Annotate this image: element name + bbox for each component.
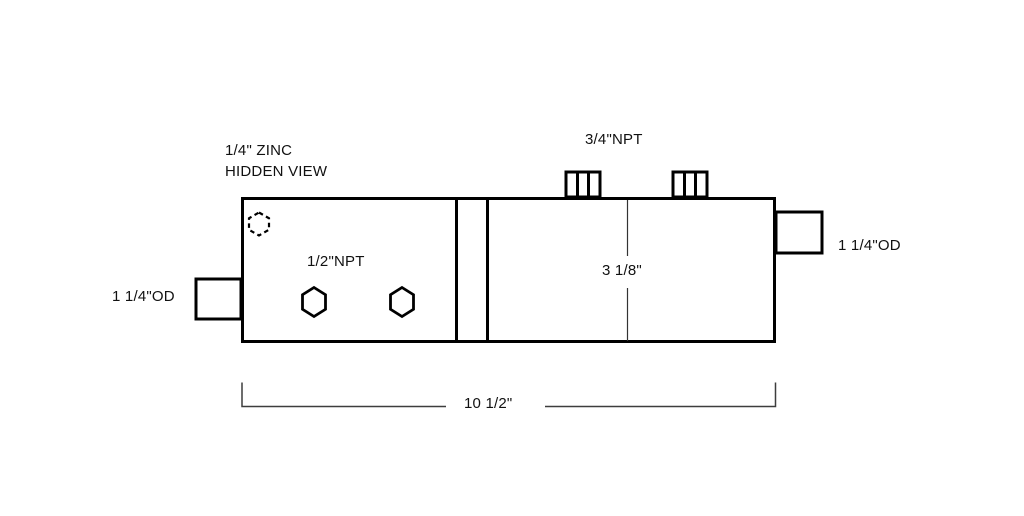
right-port-od-label: 1 1/4"OD — [838, 236, 901, 255]
top-threaded-fitting-1 — [566, 172, 600, 197]
left-port-outline — [196, 279, 241, 319]
width-dimension-bracket-left — [242, 383, 446, 407]
top-threaded-fitting-2 — [673, 172, 707, 197]
hex-plug-icon-1 — [303, 288, 326, 317]
zinc-note-line1: 1/4" ZINC — [225, 141, 292, 160]
left-port-od-label: 1 1/4"OD — [112, 287, 175, 306]
zinc-note-line2: HIDDEN VIEW — [225, 162, 327, 181]
height-dimension-label: 3 1/8" — [602, 261, 642, 280]
width-dimension-bracket-right — [545, 383, 776, 407]
face-thread-label: 1/2"NPT — [307, 252, 365, 271]
drawing-linework — [0, 0, 1024, 516]
top-thread-label: 3/4"NPT — [585, 130, 643, 149]
hex-plug-icon-2 — [391, 288, 414, 317]
width-dimension-label: 10 1/2" — [464, 394, 512, 413]
right-port-outline — [776, 212, 822, 253]
technical-drawing: 1/4" ZINC HIDDEN VIEW 3/4"NPT 1/2"NPT 3 … — [0, 0, 1024, 516]
